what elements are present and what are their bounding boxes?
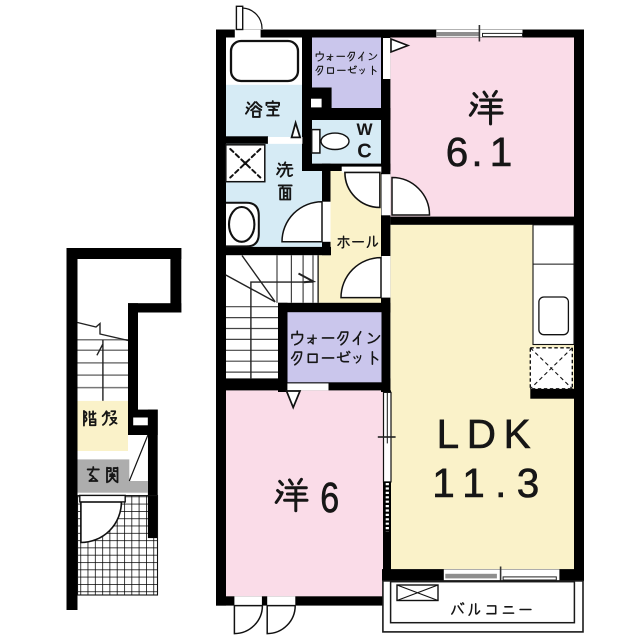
svg-text:.: . (471, 129, 482, 175)
svg-text:6: 6 (446, 129, 469, 175)
svg-text:C: C (357, 141, 371, 163)
svg-text:W: W (356, 120, 373, 139)
svg-text:LDK: LDK (437, 411, 531, 457)
svg-text:6: 6 (320, 474, 339, 521)
svg-text:1: 1 (490, 129, 513, 175)
